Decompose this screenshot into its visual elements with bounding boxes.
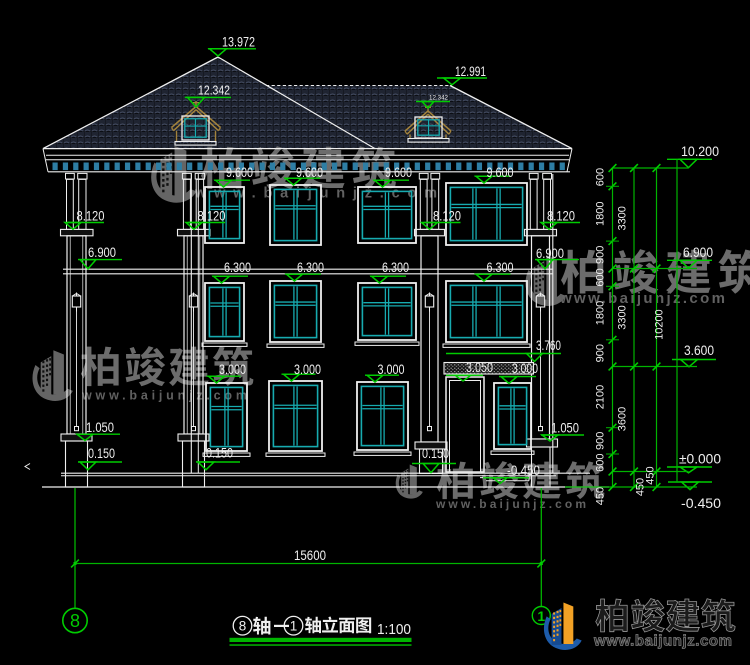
svg-text:12.991: 12.991 [455,64,486,79]
svg-text:8: 8 [70,611,80,631]
svg-text:900: 900 [595,432,607,450]
svg-text:8.120: 8.120 [77,209,105,224]
svg-text:900: 900 [595,246,607,264]
svg-text:0.150: 0.150 [88,446,115,461]
svg-text:600: 600 [595,168,607,186]
svg-text:-0.450: -0.450 [507,463,540,478]
svg-text:0.150: 0.150 [206,446,233,461]
svg-text:6.900: 6.900 [683,245,713,260]
svg-text:13.972: 13.972 [222,35,255,50]
svg-text:1: 1 [537,608,545,624]
svg-text:3.600: 3.600 [684,343,714,358]
svg-text:3.000: 3.000 [512,361,538,376]
svg-text:3600: 3600 [616,407,628,431]
svg-text:600: 600 [595,454,607,472]
svg-text:3300: 3300 [616,206,628,230]
svg-text:9.600: 9.600 [385,165,412,180]
svg-text:www.baijunjz.com: www.baijunjz.com [593,633,732,650]
svg-text:3.000: 3.000 [219,362,246,377]
svg-text:6.900: 6.900 [88,245,116,260]
svg-text:1800: 1800 [595,301,607,325]
svg-text:12.342: 12.342 [198,84,230,98]
svg-text:3.000: 3.000 [378,362,405,377]
svg-text:12.342: 12.342 [429,95,448,102]
svg-text:450: 450 [645,466,657,484]
svg-text:3300: 3300 [616,305,628,329]
svg-text:9.600: 9.600 [487,165,514,180]
svg-text:6.300: 6.300 [297,260,324,275]
svg-text:8.120: 8.120 [198,209,226,224]
svg-text:6.300: 6.300 [382,260,409,275]
svg-text:8.120: 8.120 [433,209,461,224]
svg-text:8.120: 8.120 [547,209,575,224]
svg-text:3.000: 3.000 [294,362,321,377]
svg-text:1.050: 1.050 [86,420,114,435]
svg-text:1800: 1800 [595,201,607,225]
svg-text:9.600: 9.600 [226,165,253,180]
svg-text:6.900: 6.900 [536,246,564,261]
svg-text:-0.450: -0.450 [681,496,721,511]
svg-text:2100: 2100 [595,385,607,409]
svg-text:8: 8 [239,619,247,634]
svg-text:900: 900 [595,344,607,362]
svg-text:450: 450 [595,487,607,505]
svg-text:6.300: 6.300 [487,260,514,275]
svg-text:3.050: 3.050 [466,360,493,375]
svg-text:1:100: 1:100 [377,621,411,638]
svg-text:1: 1 [290,619,298,634]
svg-text:10200: 10200 [654,309,666,340]
svg-text:9.600: 9.600 [296,165,323,180]
svg-text:1.050: 1.050 [551,421,579,436]
svg-text:10.200: 10.200 [681,144,719,159]
svg-text:±0.000: ±0.000 [679,452,721,467]
svg-text:15600: 15600 [294,548,326,563]
svg-text:0.150: 0.150 [422,446,449,461]
svg-text:6.300: 6.300 [224,260,251,275]
svg-text:600: 600 [595,268,607,286]
svg-text:3.760: 3.760 [536,338,561,353]
